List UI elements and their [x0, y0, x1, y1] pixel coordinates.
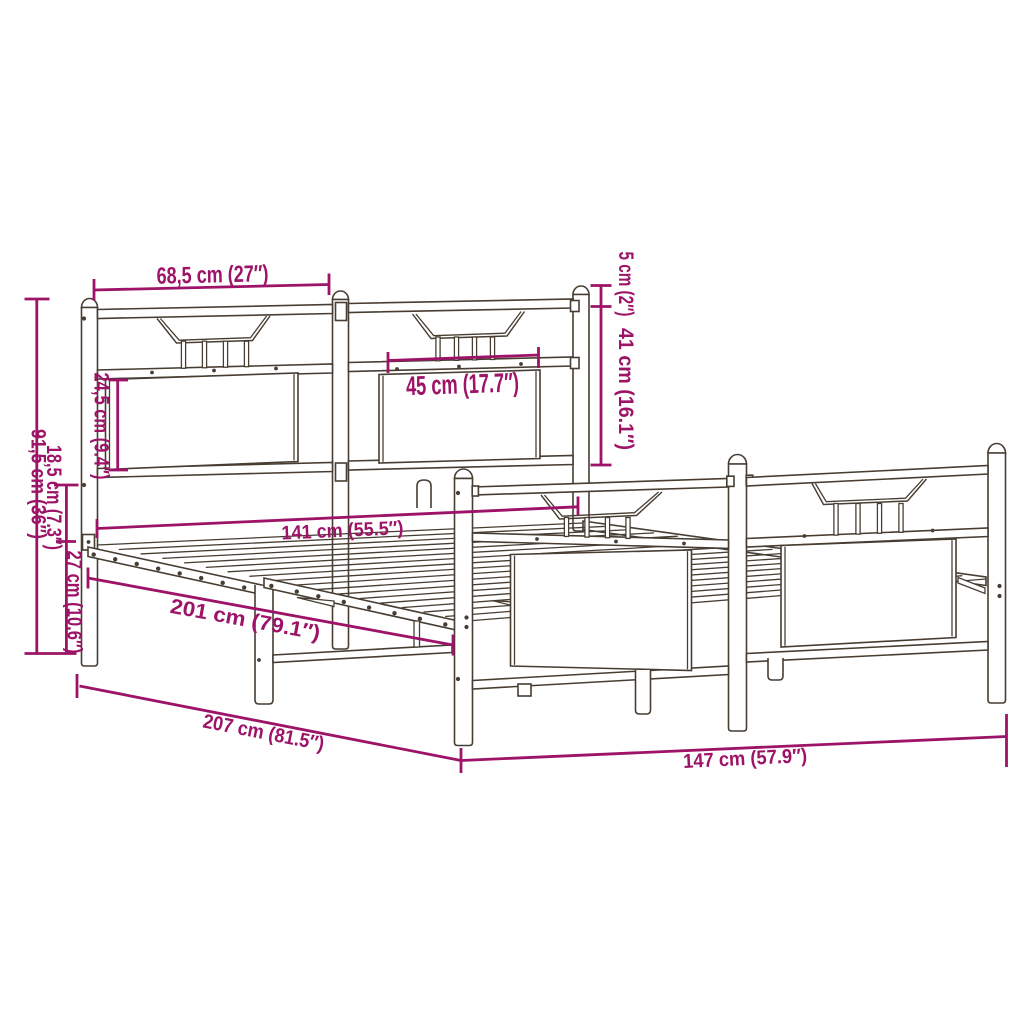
- svg-text:18,5 cm (7.3″): 18,5 cm (7.3″): [42, 445, 65, 550]
- svg-text:27 cm (10.6″): 27 cm (10.6″): [63, 551, 86, 654]
- svg-text:68,5 cm (27″): 68,5 cm (27″): [156, 260, 269, 289]
- svg-text:45 cm (17.7″): 45 cm (17.7″): [405, 367, 519, 401]
- svg-text:24,5 cm (9.4″): 24,5 cm (9.4″): [90, 373, 113, 480]
- svg-text:5 cm (2″): 5 cm (2″): [614, 252, 637, 317]
- svg-text:41 cm (16.1″): 41 cm (16.1″): [614, 328, 637, 450]
